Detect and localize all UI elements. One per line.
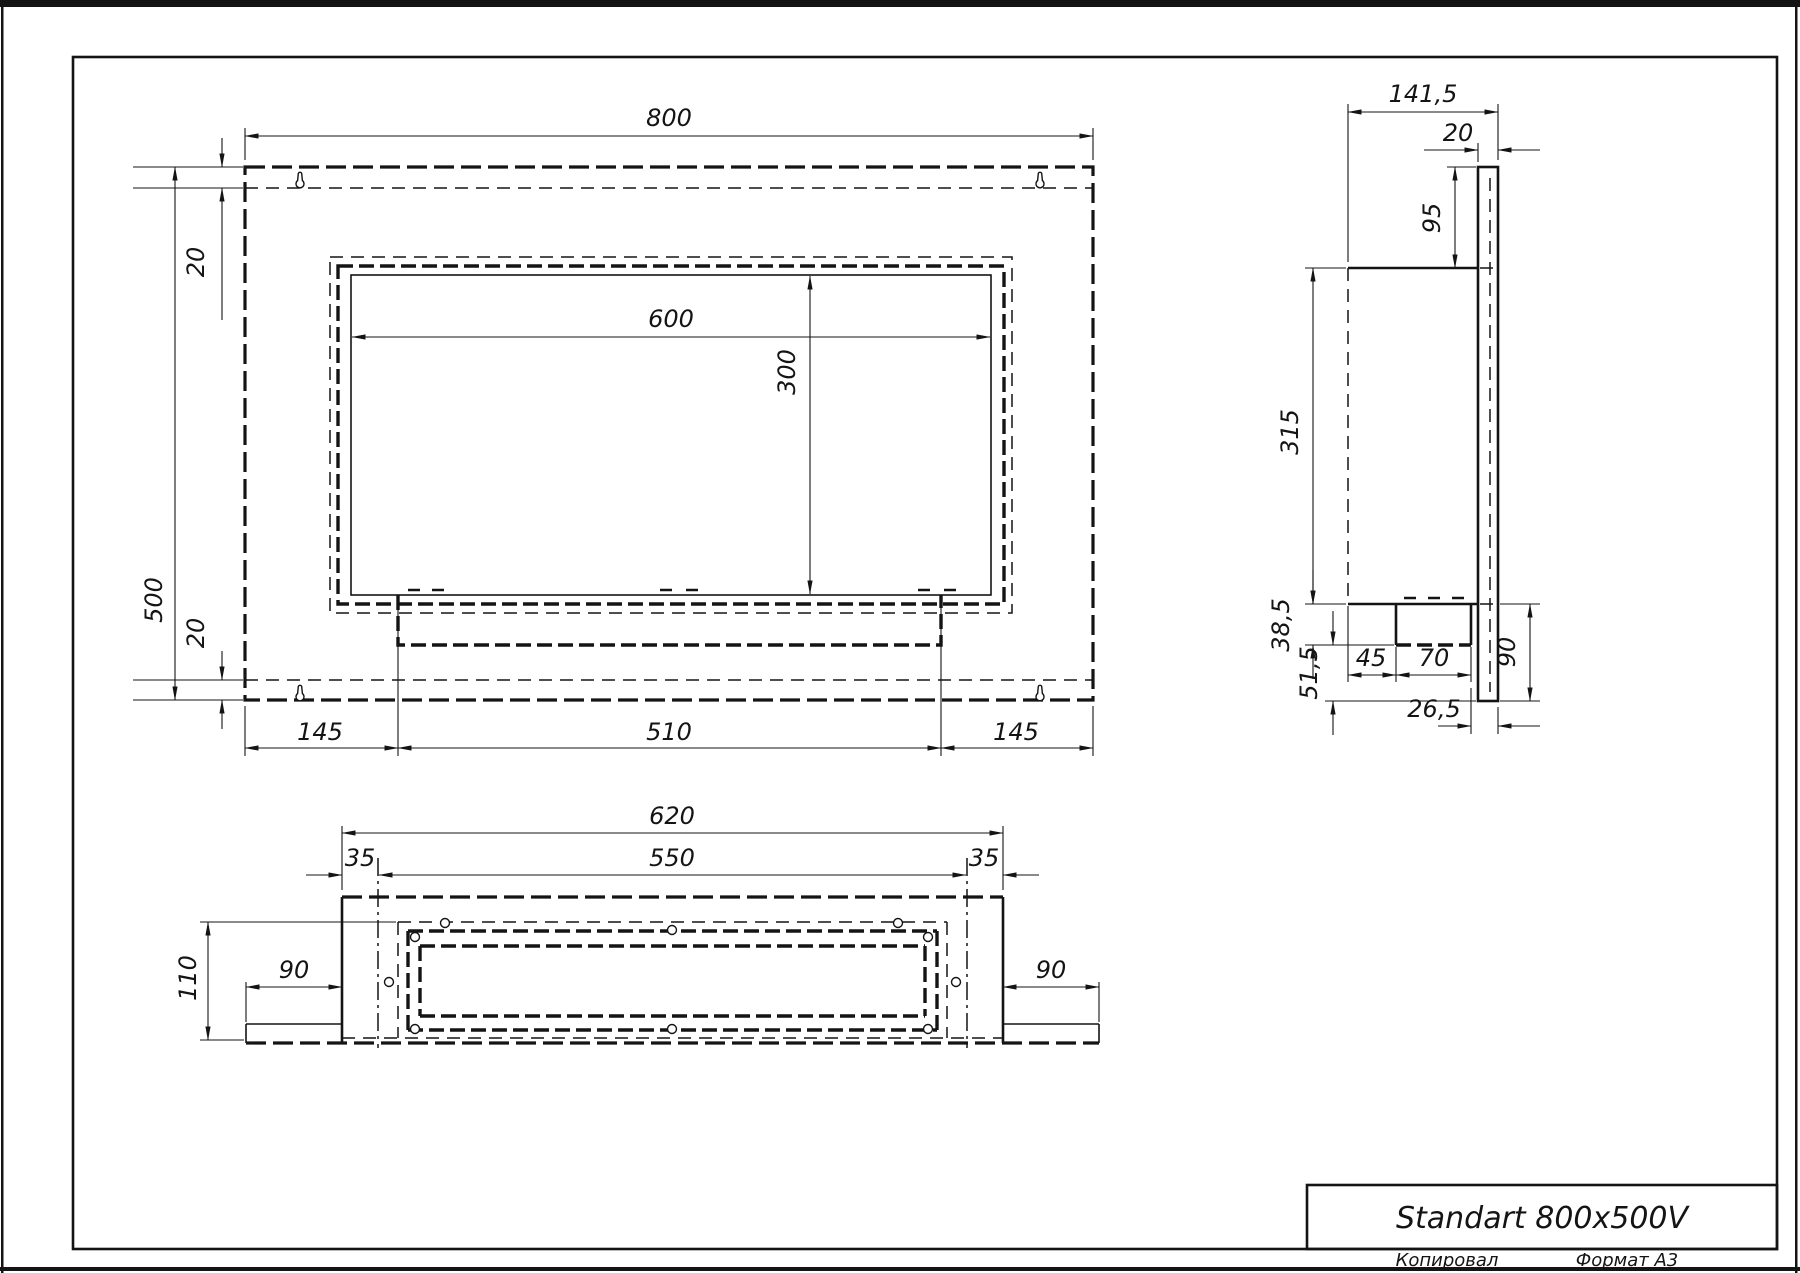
svg-text:20: 20	[182, 618, 210, 649]
svg-text:145: 145	[297, 718, 343, 746]
svg-text:300: 300	[773, 349, 801, 395]
drawing-title: Standart 800x500V	[1396, 1201, 1691, 1236]
dim-wing-left: 90	[246, 956, 342, 1022]
svg-text:510: 510	[646, 718, 692, 746]
technical-drawing: 800 500 20 20 600	[0, 0, 1800, 1273]
svg-text:315: 315	[1276, 409, 1304, 455]
dim-wing-right: 90	[1003, 956, 1099, 1022]
svg-text:110: 110	[174, 955, 202, 1001]
svg-text:90: 90	[1493, 637, 1521, 668]
svg-text:500: 500	[140, 577, 168, 623]
svg-text:70: 70	[1419, 644, 1450, 672]
sheet-left-edge	[1, 0, 4, 1273]
keyhole-slot-icons	[296, 172, 1044, 701]
sheet-bottom-edge	[0, 1267, 1800, 1271]
dim-inner-chain: 550 35 35	[306, 844, 1039, 875]
footer-copied-label: Копировал	[1396, 1250, 1499, 1271]
dim-front-bottom-chain: 145 510 145	[245, 600, 1093, 756]
svg-text:38,5: 38,5	[1267, 598, 1295, 651]
dim-top-to-body: 95	[1418, 167, 1476, 268]
svg-text:90: 90	[279, 956, 310, 984]
side-view: 141,5 20 95 315 38,5	[1267, 80, 1540, 735]
svg-text:90: 90	[1036, 956, 1067, 984]
svg-text:20: 20	[182, 247, 210, 278]
svg-text:620: 620	[649, 802, 695, 830]
svg-text:45: 45	[1356, 644, 1387, 672]
dim-front-top-offset: 20	[182, 138, 222, 320]
back-plate	[1478, 167, 1498, 701]
dim-tray-to-plate: 26,5	[1407, 688, 1540, 734]
svg-text:35: 35	[345, 844, 376, 872]
svg-text:800: 800	[646, 104, 692, 132]
dim-opening-width: 600	[352, 305, 990, 337]
sheet-right-edge	[1795, 0, 1798, 1273]
bottom-view: 620 550 35 35 110 90 90	[174, 802, 1099, 1048]
svg-text:26,5: 26,5	[1407, 695, 1460, 723]
svg-text:141,5: 141,5	[1389, 80, 1458, 108]
dim-below-body: 90	[1493, 604, 1540, 701]
svg-text:550: 550	[649, 844, 695, 872]
drip-tray	[1396, 604, 1471, 645]
dim-opening-height: 300	[773, 276, 810, 594]
svg-text:145: 145	[993, 718, 1039, 746]
svg-text:20: 20	[1443, 119, 1474, 147]
drawing-sheet: 800 500 20 20 600	[0, 0, 1800, 1273]
dim-front-width: 800	[245, 104, 1093, 160]
title-block: Standart 800x500V Копировал Формат А3	[1307, 1185, 1777, 1271]
svg-text:35: 35	[969, 844, 1000, 872]
svg-text:600: 600	[648, 305, 694, 333]
dim-side-depth: 141,5	[1348, 80, 1498, 262]
sheet-top-edge	[0, 0, 1800, 7]
front-panel-outline	[245, 167, 1093, 700]
dim-body-height: 315	[1276, 268, 1346, 604]
svg-text:95: 95	[1418, 203, 1446, 234]
dim-plate-thickness: 20	[1424, 119, 1540, 162]
svg-text:51,5: 51,5	[1295, 646, 1323, 699]
front-view: 800 500 20 20 600	[133, 104, 1093, 756]
drawing-frame	[73, 57, 1777, 1249]
dim-front-bottom-offset: 20	[182, 618, 222, 729]
footer-format-label: Формат А3	[1576, 1250, 1679, 1271]
